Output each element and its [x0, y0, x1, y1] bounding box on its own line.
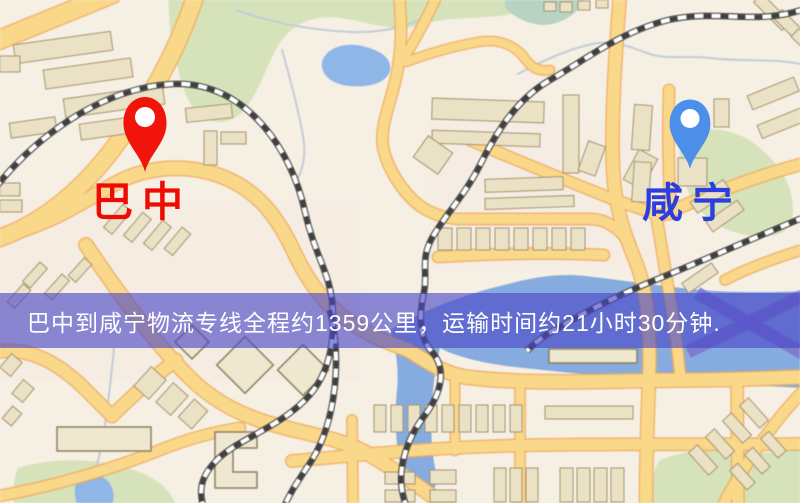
destination-label: 咸宁 [642, 183, 742, 224]
origin-pin-icon [117, 93, 173, 175]
origin-label: 巴中 [92, 182, 192, 223]
route-info-banner: 巴中到咸宁物流专线全程约1359公里，运输时间约21小时30分钟. [0, 293, 800, 348]
route-info-text: 巴中到咸宁物流专线全程约1359公里，运输时间约21小时30分钟. [27, 304, 721, 338]
logistics-route-map: 巴中 咸宁 巴中到咸宁物流专线全程约1359公里，运输时间约21小时30分钟. [0, 0, 800, 503]
map-background [0, 0, 800, 503]
destination-pin-icon [664, 96, 716, 172]
